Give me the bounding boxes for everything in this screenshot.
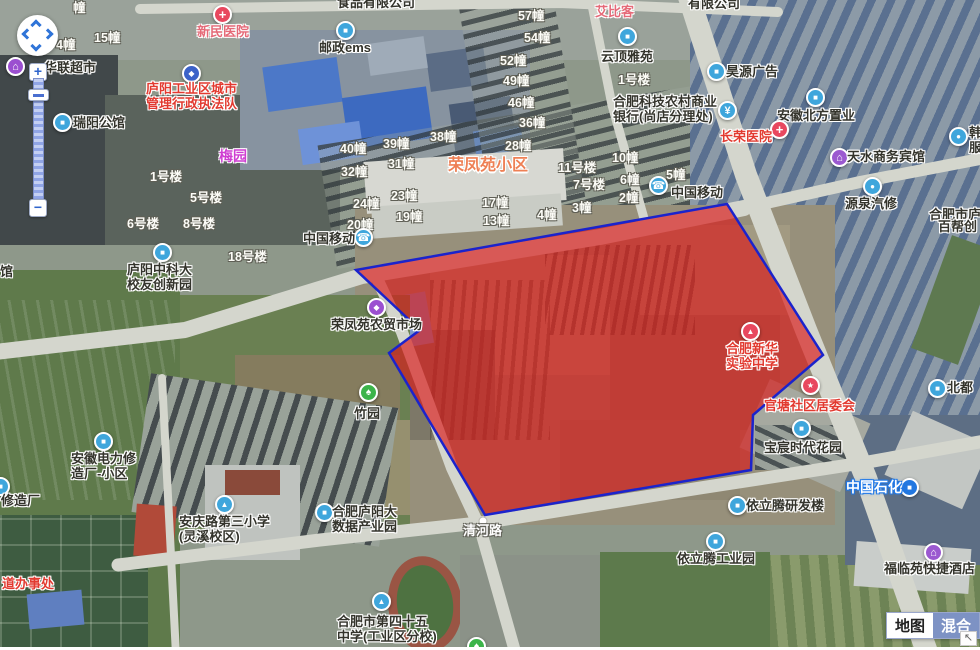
area-label: 梅园 xyxy=(219,149,247,165)
bigdata-park-label[interactable]: 合肥庐阳大数据产业园 xyxy=(332,505,397,534)
building-label: 幢 xyxy=(73,0,86,16)
building-label: 57幢 xyxy=(518,5,544,24)
xinmin-hospital-label[interactable]: 新民医院 xyxy=(197,25,249,40)
anqinglu-no3-school-label[interactable]: 安庆路第三小学(灵溪校区) xyxy=(179,515,270,544)
no45-middle-school-icon[interactable]: ▲ xyxy=(372,592,391,611)
beidu-poi-label[interactable]: 北都 xyxy=(947,381,973,396)
building-label: 5幢 xyxy=(666,164,685,183)
hualian-supermarket-icon[interactable]: ⌂ xyxy=(6,57,25,76)
china-mobile-east-label[interactable]: 中国移动 xyxy=(671,186,723,201)
ems-post-icon[interactable]: ■ xyxy=(336,21,355,40)
zoom-slider-thumb[interactable] xyxy=(28,89,49,101)
building-label: 19幢 xyxy=(396,206,422,225)
no45-middle-school-label[interactable]: 合肥市第四十五中学(工业区分校) xyxy=(337,615,437,644)
building-label: 17幢 xyxy=(482,192,508,211)
building-label: 36幢 xyxy=(519,112,545,131)
road-label: 清河路 xyxy=(463,524,502,539)
pan-control[interactable] xyxy=(17,15,58,56)
building-label: 4幢 xyxy=(56,34,75,53)
yiliteng-industrial-park-icon[interactable]: ■ xyxy=(706,532,725,551)
building-label: 28幢 xyxy=(505,135,531,154)
anhui-beifang-realty-label[interactable]: 安徽北方置业 xyxy=(777,109,855,124)
haoyuan-ad-icon[interactable]: ■ xyxy=(707,62,726,81)
yiliteng-industrial-park-label[interactable]: 依立腾工业园 xyxy=(677,552,755,567)
xinhua-experimental-school-icon[interactable]: ▲ xyxy=(741,322,760,341)
edge-auto-poi-icon[interactable]: ● xyxy=(949,127,968,146)
jiedao-office-partial-label[interactable]: 道办事处 xyxy=(2,577,54,592)
beidu-poi-icon[interactable]: ■ xyxy=(928,379,947,398)
building-label: 7号楼 xyxy=(573,174,605,193)
building-label: 24幢 xyxy=(353,193,379,212)
zhuyuan-park-icon[interactable]: ♠ xyxy=(359,383,378,402)
anhui-beifang-realty-icon[interactable]: ■ xyxy=(806,88,825,107)
ustc-alumni-park-label[interactable]: 庐阳中科大校友创新园 xyxy=(127,263,192,292)
overview-toggle-button[interactable]: ↖ xyxy=(960,631,977,646)
building-label: 38幢 xyxy=(430,126,456,145)
building-label: 52幢 xyxy=(500,50,526,69)
yiliteng-rd-building-label[interactable]: 依立腾研发楼 xyxy=(746,499,824,514)
yunding-yayuan-label[interactable]: 云顶雅苑 xyxy=(601,50,653,65)
anqinglu-no3-school-icon[interactable]: ▲ xyxy=(215,495,234,514)
edge-auto-poi-label[interactable]: 韩服 xyxy=(969,126,980,155)
xiuzaochang-partial-label[interactable]: 修造厂 xyxy=(1,494,40,509)
chengguan-bureau-label[interactable]: 庐阳工业区城市管理行政执法队 xyxy=(146,82,237,111)
guantang-committee-icon[interactable]: ★ xyxy=(801,376,820,395)
rongfengyuan-market-label[interactable]: 荣凤苑农贸市场 xyxy=(331,318,422,333)
hualian-supermarket-label[interactable]: 华联超市 xyxy=(44,61,96,76)
area-label: 艾比客 xyxy=(595,5,634,20)
building-label: 6幢 xyxy=(620,169,639,188)
rural-commercial-bank-icon[interactable]: ¥ xyxy=(718,101,737,120)
rural-commercial-bank-label[interactable]: 合肥科技农村商业银行(尚店分理处) xyxy=(613,95,717,124)
pan-up-icon[interactable] xyxy=(30,19,41,30)
building-label: 10幢 xyxy=(612,147,638,166)
pan-right-icon[interactable] xyxy=(42,28,53,39)
sinopec-station-icon[interactable]: ■ xyxy=(900,478,919,497)
building-label: 23幢 xyxy=(391,185,417,204)
building-label: 6号楼 xyxy=(127,213,159,232)
baochen-times-garden-icon[interactable]: ■ xyxy=(792,419,811,438)
building-label: 1号楼 xyxy=(618,69,650,88)
building-label: 32幢 xyxy=(341,161,367,180)
building-label: 8号楼 xyxy=(183,213,215,232)
baochen-times-garden-label[interactable]: 宝宸时代花园 xyxy=(764,441,842,456)
building-label: 13幢 xyxy=(483,210,509,229)
zhuyuan-park-label[interactable]: 竹园 xyxy=(354,407,380,422)
china-mobile-west-label[interactable]: 中国移动 xyxy=(303,232,355,247)
fulinyuan-express-hotel-label[interactable]: 福临苑快捷酒店 xyxy=(884,562,975,577)
building-label: 46幢 xyxy=(508,92,534,111)
pan-left-icon[interactable] xyxy=(21,28,32,39)
building-label: 18号楼 xyxy=(228,246,267,265)
bubang-partial-2-label[interactable]: 百帮创 xyxy=(938,220,977,235)
building-label: 2幢 xyxy=(619,187,638,206)
tianshui-hotel-label[interactable]: 天水商务宾馆 xyxy=(847,150,925,165)
yiliteng-rd-building-icon[interactable]: ■ xyxy=(728,496,747,515)
yuanquan-auto-repair-icon[interactable]: ● xyxy=(863,177,882,196)
pan-down-icon[interactable] xyxy=(30,40,41,51)
building-label: 40幢 xyxy=(340,138,366,157)
yunding-yayuan-icon[interactable]: ■ xyxy=(618,27,637,46)
building-label: 15幢 xyxy=(94,27,120,46)
haoyuan-ad-label[interactable]: 昊源广告 xyxy=(726,65,778,80)
map-canvas[interactable]: 幢15幢4幢1号楼5号楼6号楼8号楼18号楼40幢39幢38幢32幢31幢24幢… xyxy=(0,0,980,650)
building-label: 49幢 xyxy=(503,70,529,89)
anhui-electric-estate-label[interactable]: 安徽电力修造厂-小区 xyxy=(71,452,136,481)
area-label: 荣凤苑小区 xyxy=(448,157,528,175)
fulinyuan-express-hotel-icon[interactable]: ⌂ xyxy=(924,543,943,562)
building-label: 1号楼 xyxy=(150,166,182,185)
ems-post-label[interactable]: 邮政ems xyxy=(319,41,371,56)
ustc-alumni-park-icon[interactable]: ■ xyxy=(153,243,172,262)
building-label: 4幢 xyxy=(537,204,556,223)
anhui-electric-estate-icon[interactable]: ■ xyxy=(94,432,113,451)
zoom-out-button[interactable]: − xyxy=(29,199,47,217)
changrong-hospital-icon[interactable]: + xyxy=(770,120,789,139)
china-mobile-west-icon[interactable]: ☎ xyxy=(354,228,373,247)
guan-partial-label[interactable]: 馆 xyxy=(0,265,13,280)
rongfengyuan-market-icon[interactable]: ◆ xyxy=(367,298,386,317)
building-label: 31幢 xyxy=(388,153,414,172)
china-mobile-east-icon[interactable]: ☎ xyxy=(649,176,668,195)
shipin-company-partial-label[interactable]: 食品有限公司 xyxy=(337,0,415,11)
building-label: 54幢 xyxy=(524,27,550,46)
guantang-committee-label[interactable]: 官塘社区居委会 xyxy=(764,399,855,414)
changrong-hospital-label[interactable]: 长荣医院 xyxy=(720,130,772,145)
building-label: 39幢 xyxy=(383,133,409,152)
building-label: 5号楼 xyxy=(190,187,222,206)
xinhua-experimental-school-label[interactable]: 合肥新华实验中学 xyxy=(726,342,778,371)
building-label: 3幢 xyxy=(572,197,591,216)
ruiyang-mansion-icon[interactable]: ■ xyxy=(53,113,72,132)
sinopec-station-label[interactable]: 中国石化 xyxy=(846,480,902,496)
xinmin-hospital-icon[interactable]: + xyxy=(213,5,232,24)
map-type-button-map[interactable]: 地图 xyxy=(887,613,933,638)
yuanquan-auto-repair-label[interactable]: 源泉汽修 xyxy=(845,197,897,212)
company-partial-top-label[interactable]: 有限公司 xyxy=(688,0,740,12)
ruiyang-mansion-label[interactable]: 瑞阳公馆 xyxy=(73,116,125,131)
